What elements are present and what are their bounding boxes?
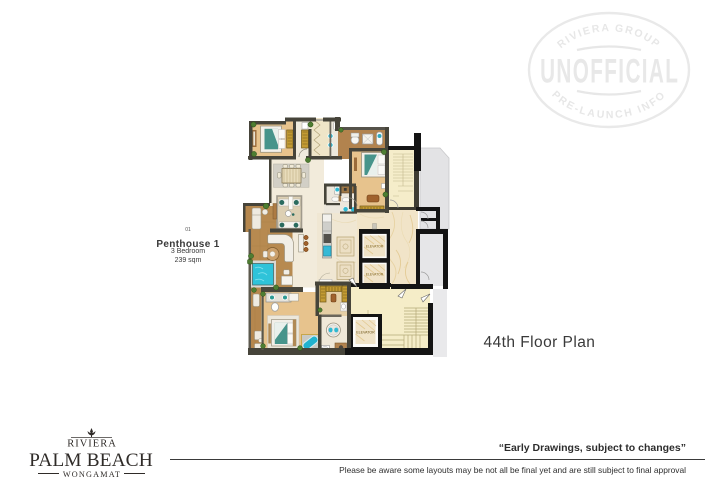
svg-text:RIVIERA: RIVIERA <box>67 439 117 450</box>
svg-text:WONGAMAT: WONGAMAT <box>63 470 121 479</box>
svg-text:PALM BEACH: PALM BEACH <box>29 450 153 471</box>
svg-text:ELEVATOR: ELEVATOR <box>366 273 384 277</box>
svg-text:ELEVATOR: ELEVATOR <box>366 245 384 249</box>
svg-text:ELEVATOR: ELEVATOR <box>356 331 375 335</box>
